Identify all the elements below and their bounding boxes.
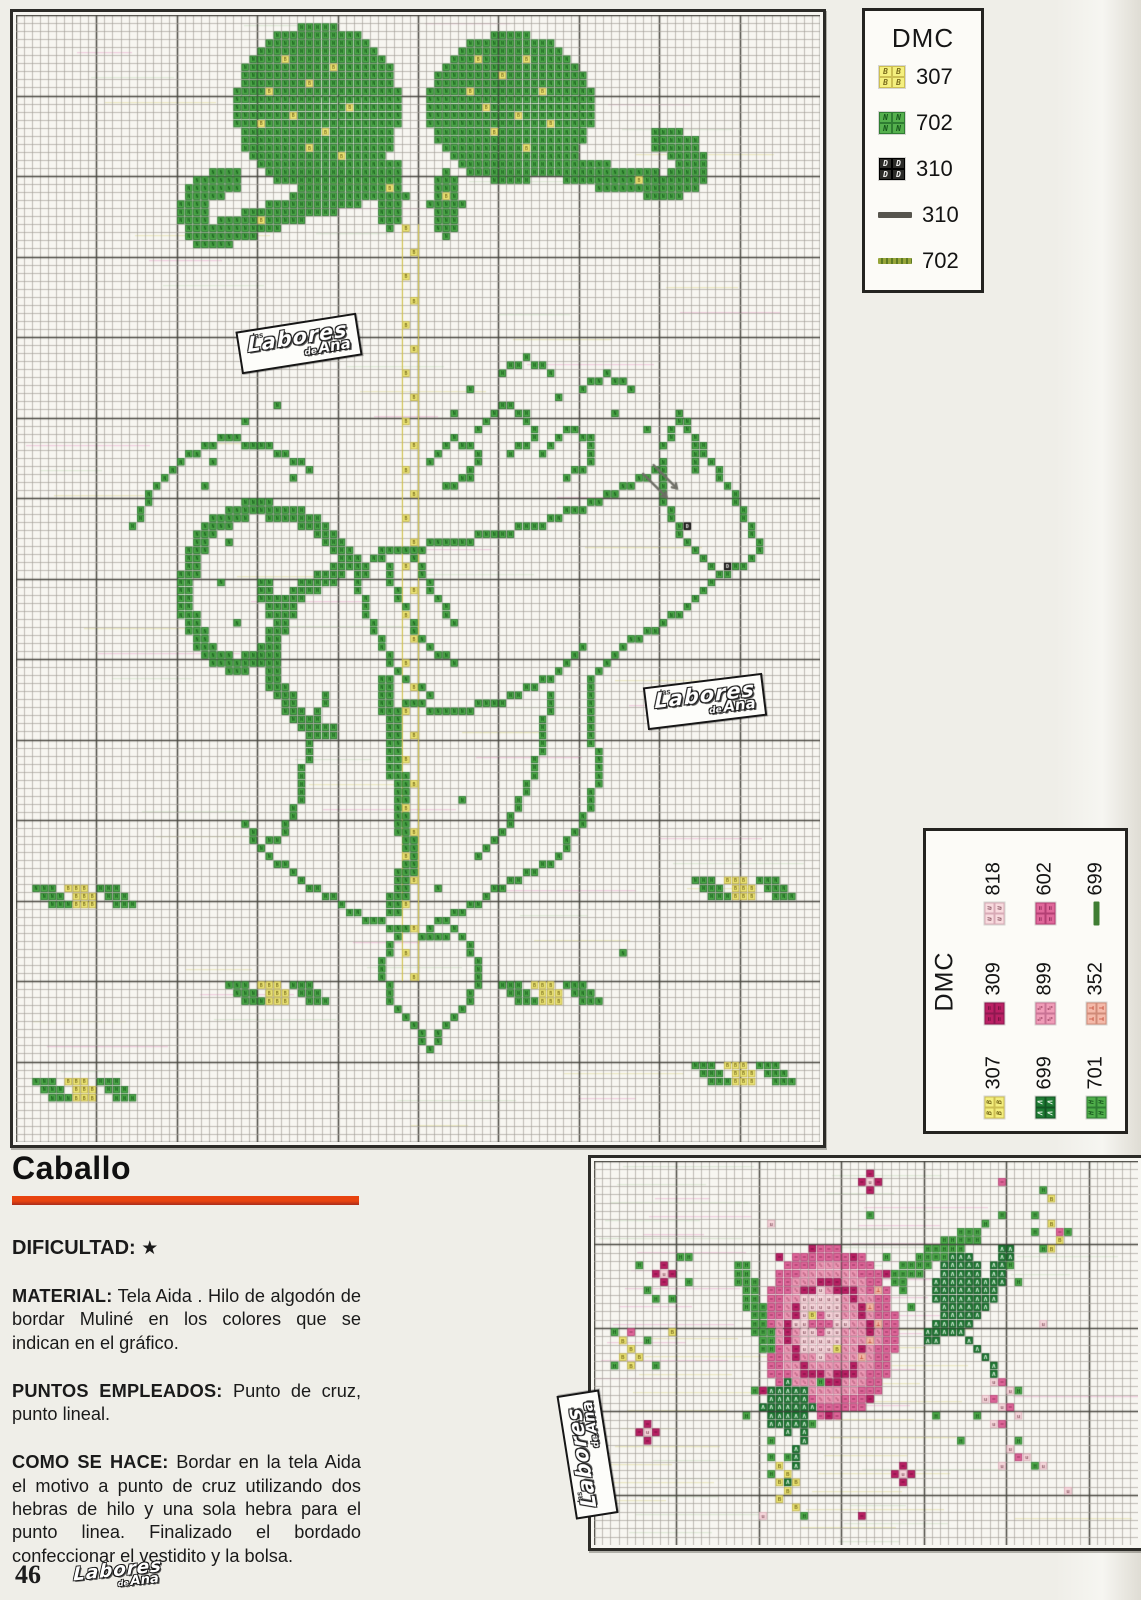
color-code: 309 [982, 962, 1005, 995]
legend-entry: DDDD310 [865, 146, 981, 192]
legend-entry: BBBB307 [982, 1056, 1005, 1119]
paragraph: MATERIAL: Tela Aida . Hilo de algodón de… [12, 1285, 361, 1355]
color-code: 307 [982, 1056, 1005, 1089]
legend-entry: %%%%899 [1033, 962, 1056, 1025]
legend-entry: BBBB307 [865, 54, 981, 100]
legend-entry: ====309 [982, 962, 1005, 1025]
color-swatch: ==== [983, 1001, 1005, 1025]
magazine-page: DMC BBBB307NNNN702DDDD310310702 DMC BBBB… [0, 0, 1141, 1600]
color-code: 602 [1033, 862, 1056, 895]
color-swatch: BBBB [983, 1095, 1005, 1119]
color-swatch: DDDD [878, 157, 906, 181]
main-pattern-chart [10, 9, 826, 1148]
color-swatch: ⊥⊥⊥⊥ [1085, 1001, 1107, 1025]
dmc-legend-side: DMC BBBB307====309uuuu818ΛΛΛΛ699%%%%899=… [923, 828, 1128, 1134]
color-swatch: NNNN [878, 111, 906, 135]
color-code: 899 [1033, 962, 1056, 995]
color-swatch: ΛΛΛΛ [1034, 1095, 1056, 1119]
color-swatch: BBBB [878, 65, 906, 89]
color-code: 310 [922, 202, 959, 228]
backstitch-line-swatch [878, 212, 912, 218]
star-icon: ★ [141, 1238, 158, 1259]
legend-entries: BBBB307NNNN702DDDD310310702 [865, 54, 981, 284]
article: Caballo DIFICULTAD: ★ MATERIAL: Tela Aid… [12, 1150, 361, 1568]
title-rule [12, 1196, 359, 1205]
paragraph: COMO SE HACE: Bordar en la tela Aida el … [12, 1451, 361, 1567]
legend-side-rotated: DMC BBBB307====309uuuu818ΛΛΛΛ699%%%%899=… [926, 831, 1125, 1131]
difficulty-row: DIFICULTAD: ★ [12, 1237, 361, 1260]
backstitch-line-swatch [1093, 901, 1099, 925]
color-swatch: ==== [1034, 901, 1056, 925]
color-code: 702 [922, 248, 959, 274]
color-code: 310 [916, 156, 953, 182]
page-number: 46 [15, 1560, 41, 1590]
legend-title: DMC [930, 831, 959, 1131]
color-code: 699 [1033, 1056, 1056, 1089]
paragraph: PUNTOS EMPLEADOS: Punto de cruz, punto l… [12, 1380, 361, 1427]
legend-entry: 702 [865, 238, 981, 284]
color-code: 702 [916, 110, 953, 136]
color-swatch: uuuu [983, 901, 1005, 925]
legend-entry: ⊥⊥⊥⊥352 [1084, 962, 1107, 1025]
color-code: 818 [982, 862, 1005, 895]
color-code: 699 [1084, 862, 1107, 895]
legend-entry: HHHH701 [1084, 1056, 1107, 1119]
color-code: 352 [1084, 962, 1107, 995]
color-swatch: %%%% [1034, 1001, 1056, 1025]
legend-entry: ΛΛΛΛ699 [1033, 1056, 1056, 1119]
main-pattern-canvas [16, 15, 820, 1142]
color-code: 307 [916, 64, 953, 90]
legend-title: DMC [865, 23, 981, 54]
dmc-legend-top: DMC BBBB307NNNN702DDDD310310702 [862, 8, 984, 293]
color-code: 701 [1084, 1056, 1107, 1089]
difficulty-label: DIFICULTAD: [12, 1237, 136, 1259]
rose-pattern-chart [588, 1155, 1141, 1551]
legend-entry: uuuu818 [982, 862, 1005, 925]
article-paragraphs: MATERIAL: Tela Aida . Hilo de algodón de… [12, 1285, 361, 1568]
color-swatch: HHHH [1085, 1095, 1107, 1119]
page-title: Caballo [12, 1150, 361, 1187]
legend-entry: ====602 [1033, 862, 1056, 925]
rose-pattern-canvas [594, 1161, 1138, 1545]
legend-entry: NNNN702 [865, 100, 981, 146]
legend-entry: 310 [865, 192, 981, 238]
legend-entry: 699 [1084, 862, 1107, 925]
backstitch-line-swatch [878, 258, 912, 264]
